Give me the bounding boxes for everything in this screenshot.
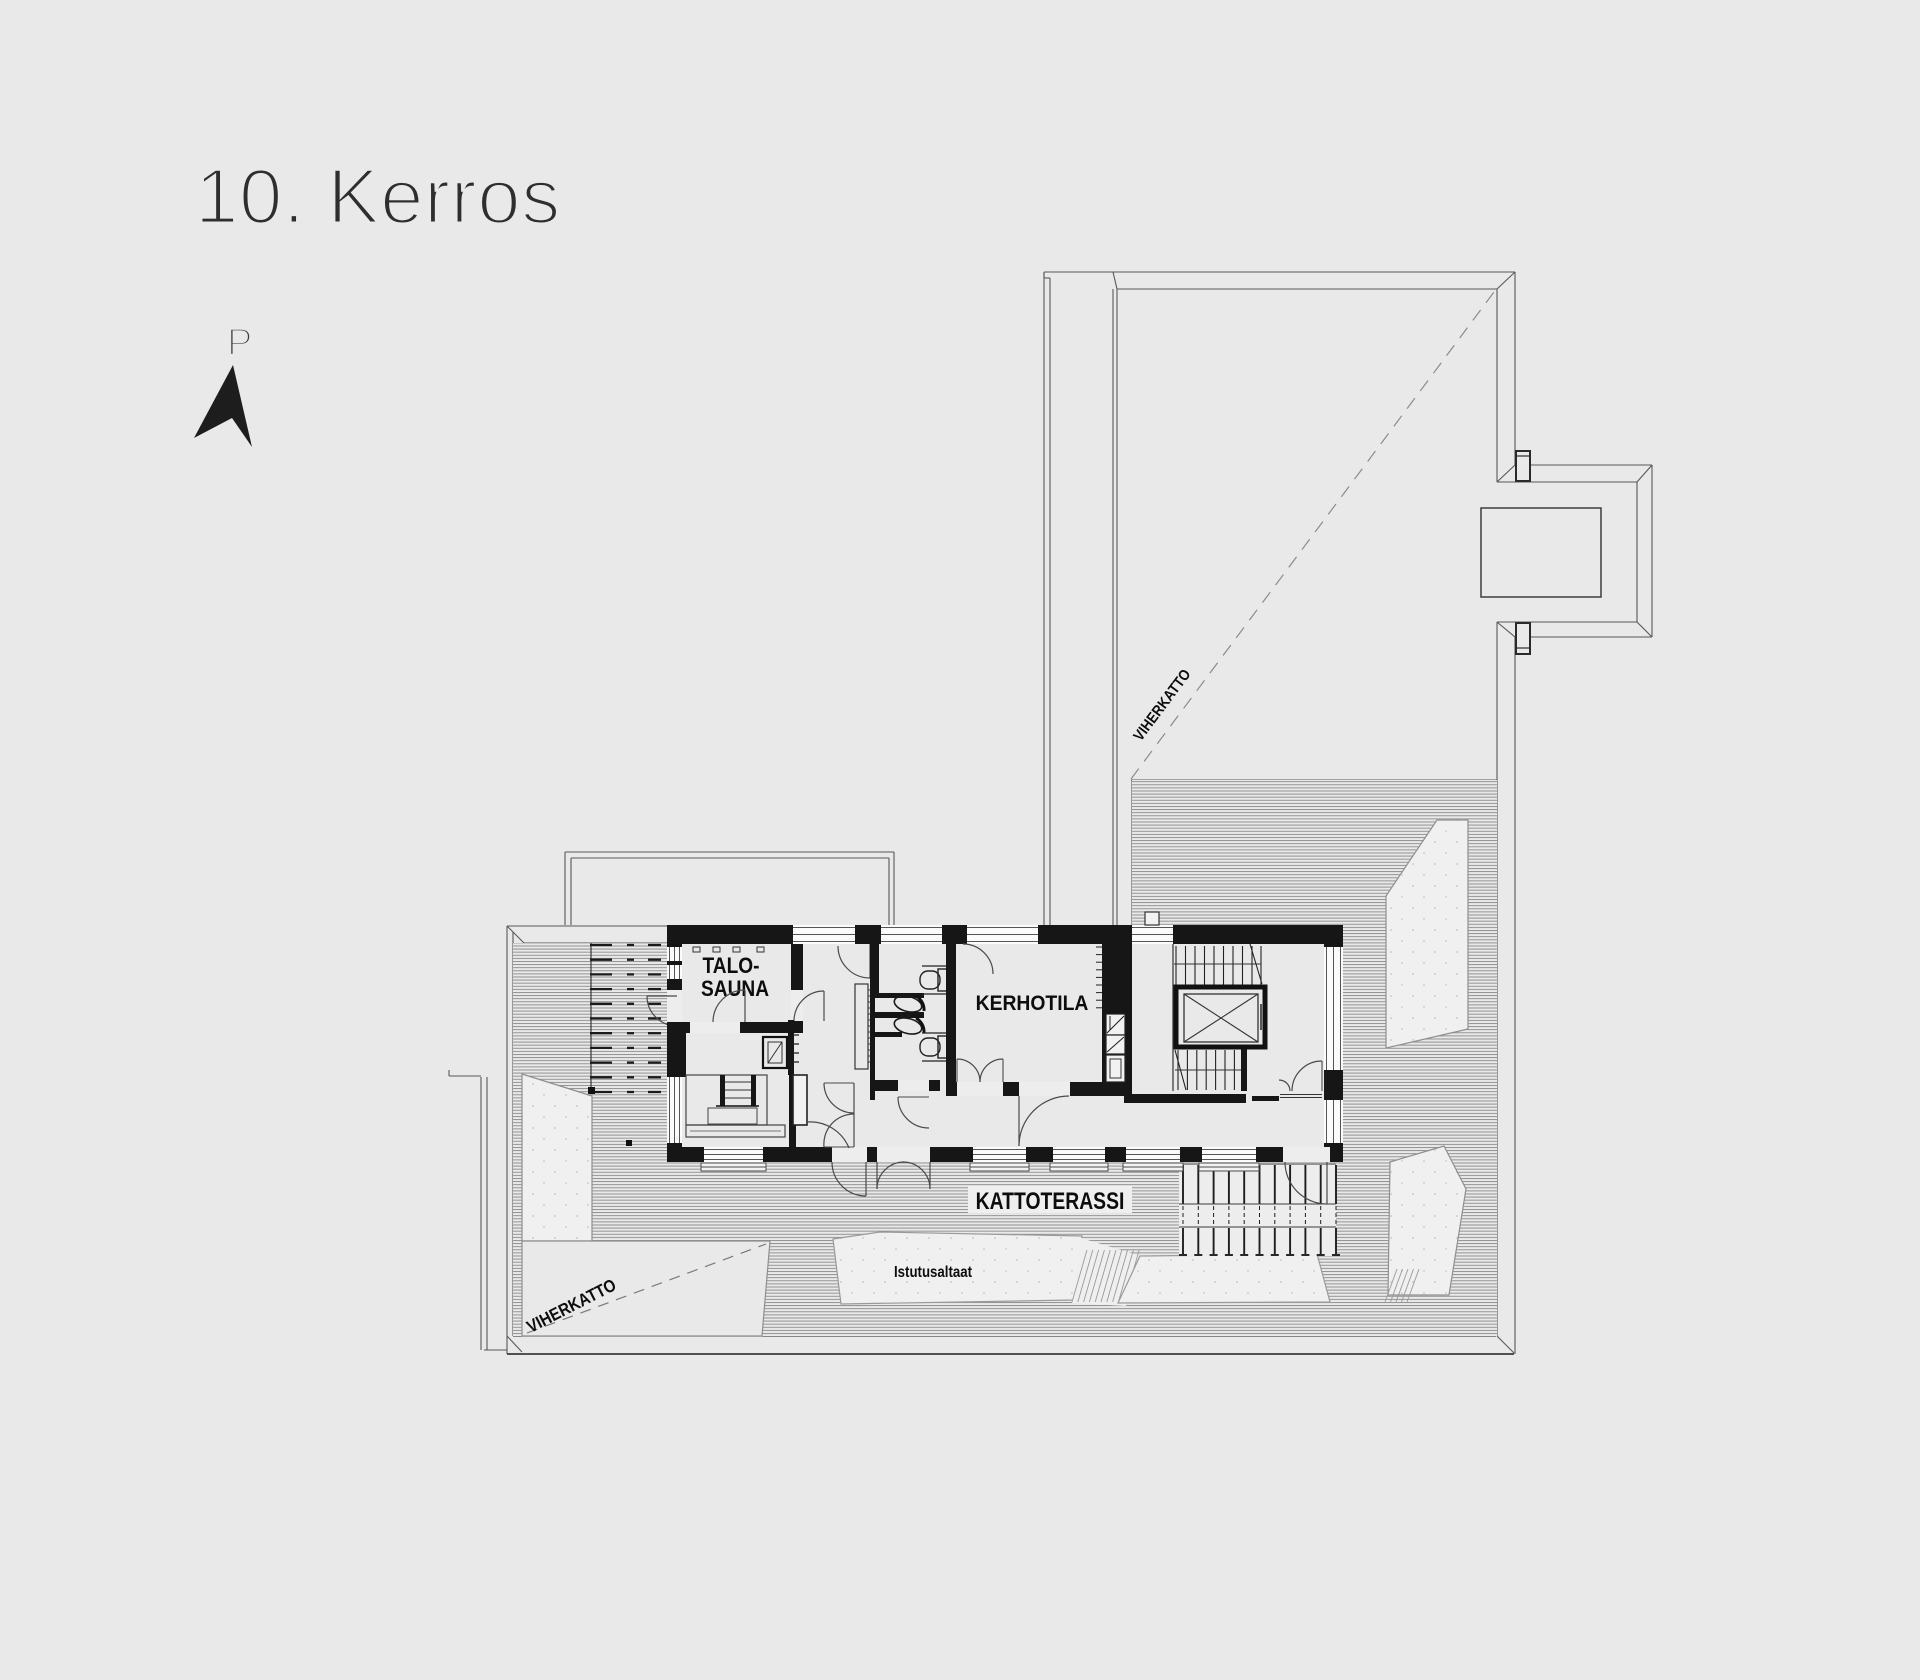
svg-text:KATTOTERASSI: KATTOTERASSI (976, 1187, 1125, 1214)
svg-text:TALO-: TALO- (702, 954, 759, 979)
svg-text:P: P (227, 322, 252, 364)
svg-text:Istutusaltaat: Istutusaltaat (894, 1264, 972, 1281)
svg-text:KERHOTILA: KERHOTILA (976, 991, 1089, 1015)
svg-text:SAUNA: SAUNA (701, 977, 769, 1002)
svg-text:10. Kerros: 10. Kerros (195, 152, 561, 240)
